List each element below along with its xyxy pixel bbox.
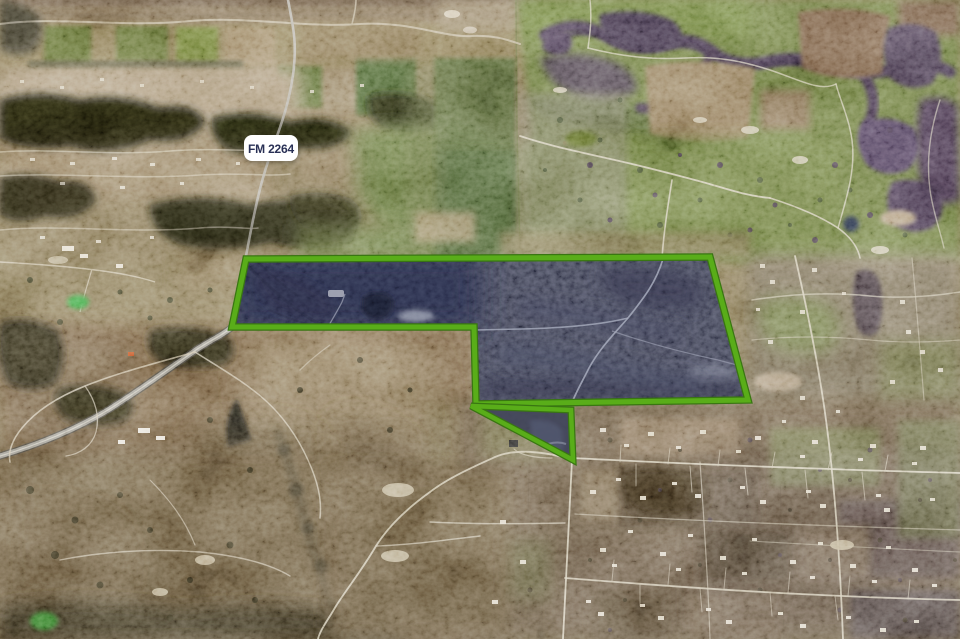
- svg-text:FM 2264: FM 2264: [248, 142, 294, 156]
